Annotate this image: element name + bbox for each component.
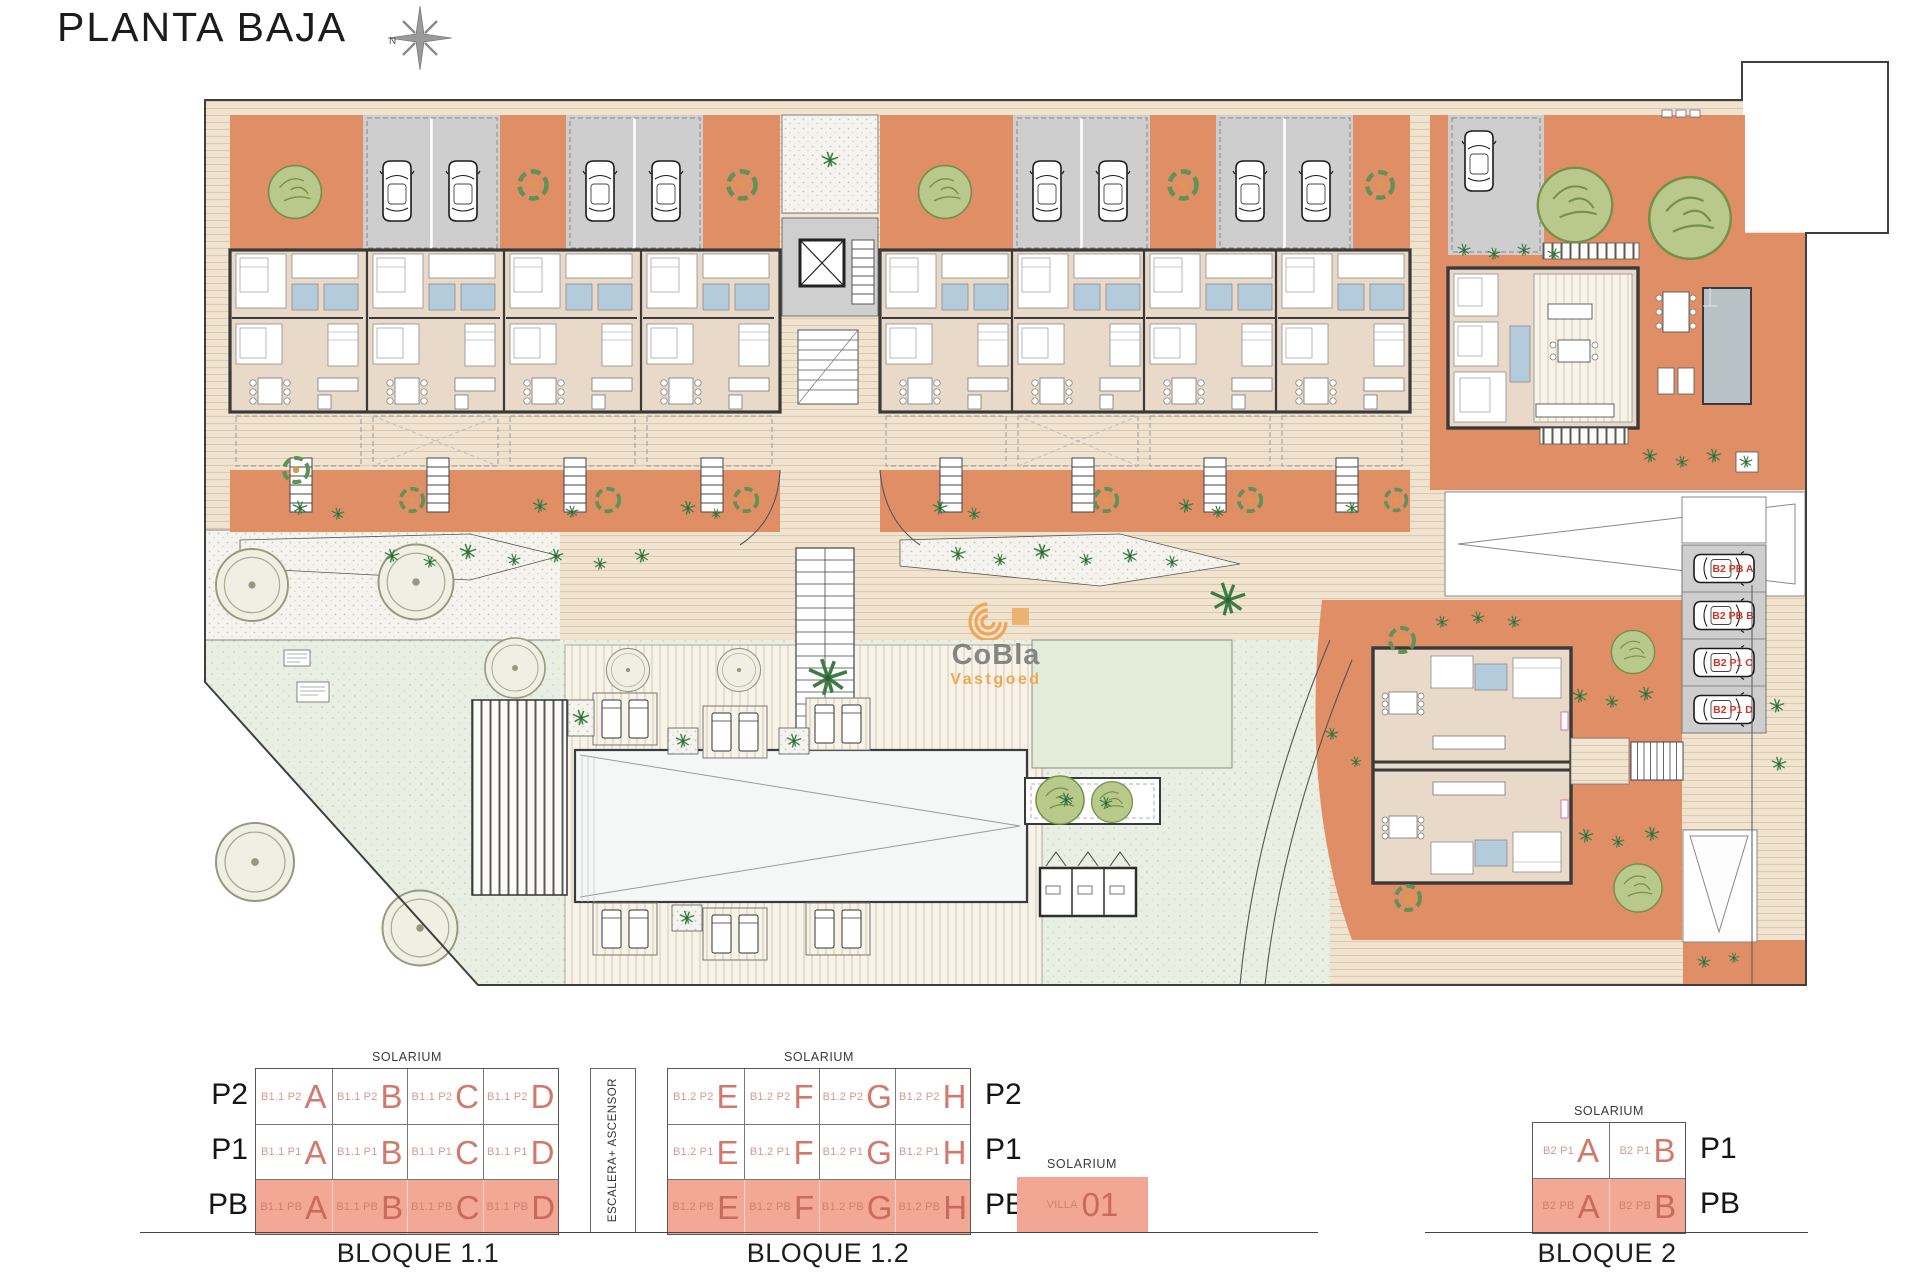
unit-code: B1.1 P1 [487, 1146, 528, 1158]
unit-code: B1.1 P2 [412, 1091, 453, 1103]
villa-01-diagram: VILLA 01 [1017, 1177, 1148, 1232]
unit-b12-pb-e: B1.2 PBE [668, 1180, 744, 1234]
unit-letter: F [793, 1136, 813, 1169]
floor-label-p2-right: P2 [985, 1078, 1055, 1112]
unit-letter: C [455, 1080, 479, 1113]
watermark-name: CoBla [916, 640, 1076, 670]
unit-b11-p2-b: B1.1 P2B [332, 1069, 408, 1124]
unit-b12-p2-e: B1.2 P2E [668, 1069, 744, 1124]
unit-letter: B [381, 1136, 403, 1169]
unit-letter: F [794, 1191, 814, 1224]
parking-label: B2 P1 C [1713, 657, 1753, 669]
unit-code: B1.2 P1 [750, 1146, 791, 1158]
unit-b12-pb-g: B1.2 PBG [819, 1180, 895, 1234]
parking-label: B2 PB A [1712, 563, 1753, 575]
unit-b11-p2-d: B1.1 P2D [483, 1069, 559, 1124]
unit-letter: B [381, 1191, 403, 1224]
unit-letter: D [531, 1191, 555, 1224]
unit-letter: B [1653, 1134, 1675, 1167]
unit-letter: A [305, 1191, 327, 1224]
unit-b2-pb-b: B2 PBB [1609, 1179, 1685, 1233]
unit-code: B1.2 P1 [899, 1146, 940, 1158]
floor-label-pb-b2: PB [1700, 1187, 1770, 1221]
row-pb-highlighted: B1.2 PBE B1.2 PBF B1.2 PBG B1.2 PBH [668, 1179, 970, 1234]
bloque-2-diagram: B2 P1A B2 P1B B2 PBA B2 PBB [1532, 1122, 1686, 1234]
unit-b2-p1-b: B2 P1B [1609, 1123, 1685, 1178]
unit-b12-p1-f: B1.2 P1F [744, 1125, 820, 1179]
solarium-label-b12: SOLARIUM [719, 1050, 919, 1064]
unit-code: B1.2 P2 [823, 1091, 864, 1103]
unit-letter: H [943, 1191, 967, 1224]
floor-label-p1-left: P1 [160, 1133, 248, 1167]
floor-label-p1-b2: P1 [1700, 1132, 1770, 1166]
unit-b11-pb-a: B1.1 PBA [256, 1180, 332, 1234]
parking-label: B2 PB B [1712, 610, 1754, 622]
unit-letter: E [717, 1191, 739, 1224]
unit-b12-p2-h: B1.2 P2H [895, 1069, 971, 1124]
unit-b12-p1-h: B1.2 P1H [895, 1125, 971, 1179]
unit-code: B1.1 PB [260, 1201, 302, 1213]
bloque2-parking: B2 PB A B2 PB B B2 P1 C B2 P1 D [1682, 497, 1766, 733]
site-plan: B2 PB A B2 PB B B2 P1 C B2 P1 D [0, 0, 1920, 1035]
unit-b12-p2-f: B1.2 P2F [744, 1069, 820, 1124]
unit-b11-p1-d: B1.1 P1D [483, 1125, 559, 1179]
compass-icon: N [388, 6, 452, 70]
unit-b2-pb-a: B2 PBA [1533, 1179, 1609, 1233]
bloque-1-1-diagram: B1.1 P2A B1.1 P2B B1.1 P2C B1.1 P2D B1.1… [255, 1068, 559, 1235]
unit-code: B1.2 P1 [673, 1146, 714, 1158]
unit-code: B1.1 P2 [337, 1091, 378, 1103]
unit-code: B2 P1 [1620, 1145, 1651, 1157]
row-p2: B1.1 P2A B1.1 P2B B1.1 P2C B1.1 P2D [256, 1069, 558, 1124]
watermark-logo: CoBla Vastgoed [916, 598, 1076, 689]
unit-letter: C [455, 1136, 479, 1169]
row-p1: B1.1 P1A B1.1 P1B B1.1 P1C B1.1 P1D [256, 1124, 558, 1179]
unit-code: B2 P1 [1543, 1145, 1574, 1157]
villa-number: 01 [1082, 1188, 1119, 1221]
unit-code: B1.2 P2 [750, 1091, 791, 1103]
unit-letter: F [793, 1080, 813, 1113]
unit-b11-p1-c: B1.1 P1C [407, 1125, 483, 1179]
unit-letter: E [717, 1080, 739, 1113]
page-title: PLANTA BAJA [57, 4, 347, 51]
floor-plan-page: B2 PB A B2 PB B B2 P1 C B2 P1 D [0, 0, 1920, 1280]
unit-letter: H [943, 1080, 967, 1113]
unit-code: B2 PB [1619, 1200, 1651, 1212]
solarium-label-b2: SOLARIUM [1534, 1104, 1684, 1118]
unit-letter: A [1577, 1134, 1599, 1167]
unit-code: B1.1 P1 [337, 1146, 378, 1158]
bloque-1-2-name: BLOQUE 1.2 [728, 1238, 928, 1269]
unit-b12-pb-f: B1.2 PBF [744, 1180, 820, 1234]
building-bloque-1-2 [880, 250, 1410, 412]
unit-code: B1.1 PB [411, 1201, 453, 1213]
row-pb-highlighted: B2 PBA B2 PBB [1533, 1178, 1685, 1233]
north-label: N [389, 36, 396, 47]
row-pb-highlighted: B1.1 PBA B1.1 PBB B1.1 PBC B1.1 PBD [256, 1179, 558, 1234]
unit-letter: G [867, 1191, 893, 1224]
unit-b2-p1-a: B2 P1A [1533, 1123, 1609, 1178]
building-bloque-1-1 [230, 250, 780, 412]
watermark-sun-icon [936, 598, 1056, 640]
unit-b12-p1-g: B1.2 P1G [819, 1125, 895, 1179]
unit-code: B1.1 P1 [261, 1146, 302, 1158]
unit-code: B1.2 P2 [673, 1091, 714, 1103]
community-pool [575, 750, 1027, 902]
bloque-1-1-name: BLOQUE 1.1 [318, 1238, 518, 1269]
unit-code: B1.1 P2 [487, 1091, 528, 1103]
solarium-label-b11: SOLARIUM [307, 1050, 507, 1064]
unit-letter: C [456, 1191, 480, 1224]
row-p1: B1.2 P1E B1.2 P1F B1.2 P1G B1.2 P1H [668, 1124, 970, 1179]
unit-b11-pb-c: B1.1 PBC [407, 1180, 483, 1234]
elevator-icon [800, 240, 844, 286]
row-p2: B1.2 P2E B1.2 P2F B1.2 P2G B1.2 P2H [668, 1069, 970, 1124]
unit-letter: D [531, 1136, 555, 1169]
unit-letter: E [717, 1136, 739, 1169]
unit-b12-pb-h: B1.2 PBH [895, 1180, 971, 1234]
bloque-2-name: BLOQUE 2 [1507, 1238, 1707, 1269]
unit-b11-pb-d: B1.1 PBD [483, 1180, 559, 1234]
row-p1: B2 P1A B2 P1B [1533, 1123, 1685, 1178]
unit-code: B2 PB [1542, 1200, 1574, 1212]
unit-code: B1.1 PB [486, 1201, 528, 1213]
unit-b11-p1-b: B1.1 P1B [332, 1125, 408, 1179]
unit-letter: H [943, 1136, 967, 1169]
unit-code: B1.2 PB [672, 1201, 714, 1213]
bloque-1-2-diagram: B1.2 P2E B1.2 P2F B1.2 P2G B1.2 P2H B1.2… [667, 1068, 971, 1235]
unit-b11-p1-a: B1.1 P1A [256, 1125, 332, 1179]
parking-label: B2 P1 D [1713, 704, 1753, 716]
unit-b12-p1-e: B1.2 P1E [668, 1125, 744, 1179]
unit-code: B1.1 P2 [261, 1091, 302, 1103]
unit-b12-p2-g: B1.2 P2G [819, 1069, 895, 1124]
unit-code: B1.2 PB [898, 1201, 940, 1213]
floor-label-p2-left: P2 [160, 1078, 248, 1112]
ground-line-left [140, 1232, 1318, 1233]
unit-letter: A [1578, 1190, 1600, 1223]
unit-code: B1.2 PB [822, 1201, 864, 1213]
escalera-ascensor-box: ESCALERA+ ASCENSOR [590, 1068, 636, 1233]
unit-letter: D [531, 1080, 555, 1113]
unit-letter: A [305, 1136, 327, 1169]
unit-code: B1.2 P1 [823, 1146, 864, 1158]
floor-label-pb-left: PB [160, 1188, 248, 1222]
unit-b11-pb-b: B1.1 PBB [332, 1180, 408, 1234]
unit-code: B1.2 PB [749, 1201, 791, 1213]
solarium-label-villa: SOLARIUM [1007, 1157, 1157, 1171]
pergola [472, 700, 567, 895]
unit-code: B1.1 PB [336, 1201, 378, 1213]
unit-letter: B [381, 1080, 403, 1113]
unit-code: B1.1 P1 [412, 1146, 453, 1158]
unit-code: B1.2 P2 [899, 1091, 940, 1103]
bloque2-stairs [1631, 742, 1683, 780]
villa-label: VILLA [1047, 1199, 1078, 1211]
unit-b11-p2-a: B1.1 P2A [256, 1069, 332, 1124]
watermark-sub: Vastgoed [916, 671, 1076, 689]
ground-line-right [1425, 1232, 1808, 1233]
unit-b11-p2-c: B1.1 P2C [407, 1069, 483, 1124]
escalera-label: ESCALERA+ ASCENSOR [607, 1078, 619, 1222]
villa-pool [1703, 288, 1751, 404]
unit-letter: B [1654, 1190, 1676, 1223]
unit-letter: A [305, 1080, 327, 1113]
unit-letter: G [866, 1136, 892, 1169]
unit-letter: G [866, 1080, 892, 1113]
